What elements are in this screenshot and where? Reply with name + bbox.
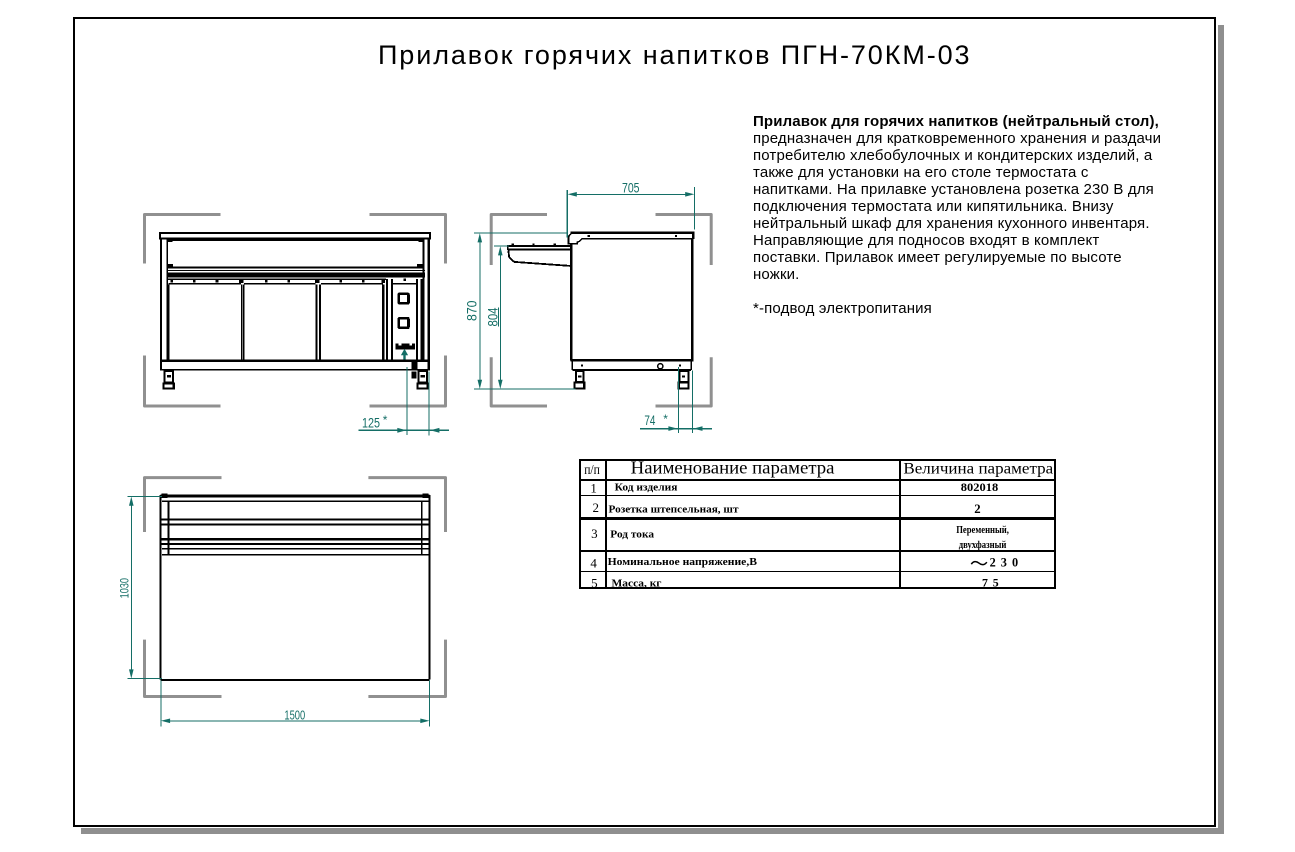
svg-text:5: 5 [591, 575, 598, 590]
svg-text:п/п: п/п [584, 463, 600, 478]
svg-text:Наименование параметра: Наименование параметра [631, 457, 835, 477]
svg-text:1030: 1030 [118, 578, 132, 599]
svg-text:2: 2 [593, 500, 600, 515]
svg-text:Номинальное напряжение,В: Номинальное напряжение,В [608, 557, 757, 568]
svg-text:75: 75 [982, 576, 999, 590]
svg-text:Код изделия: Код изделия [615, 483, 678, 494]
svg-text:4: 4 [590, 556, 597, 571]
svg-text:3: 3 [591, 526, 598, 541]
svg-text:1500: 1500 [284, 708, 305, 723]
svg-text:802018: 802018 [961, 480, 999, 494]
svg-text:2: 2 [974, 502, 980, 516]
svg-text:Род тока: Род тока [610, 529, 655, 540]
svg-text:Масса, кг: Масса, кг [612, 579, 662, 590]
svg-text:804: 804 [486, 307, 501, 326]
svg-text:Переменный,: Переменный, [956, 525, 1009, 536]
svg-text:74: 74 [644, 413, 655, 428]
svg-text:*: * [663, 412, 668, 426]
svg-text:Розетка штепсельная, шт: Розетка штепсельная, шт [609, 504, 740, 515]
svg-text:Величина параметра: Величина параметра [903, 460, 1053, 477]
svg-text:125: 125 [362, 415, 380, 430]
svg-text:1: 1 [590, 481, 597, 496]
svg-text:870: 870 [464, 301, 479, 322]
svg-text:*: * [383, 413, 388, 427]
svg-text:двухфазный: двухфазный [959, 540, 1007, 551]
svg-text:230: 230 [990, 555, 1019, 569]
svg-text:705: 705 [622, 181, 640, 196]
